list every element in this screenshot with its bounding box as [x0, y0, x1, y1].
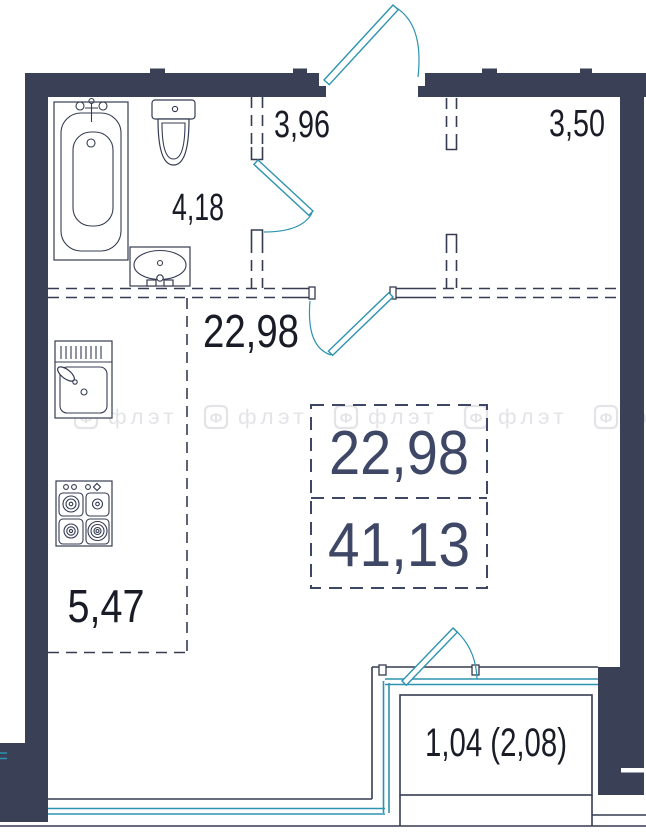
left-wall [25, 73, 48, 822]
entrance-door [324, 5, 419, 85]
right-bottom-pier [598, 667, 644, 795]
room-area-label-hallway: 3,96 [274, 104, 330, 146]
living-room-door [309, 293, 393, 356]
balcony-door [402, 628, 477, 685]
sink-faucet [157, 275, 163, 281]
summary-living-area: 22,98 [329, 419, 469, 488]
living-door-jamb-left [309, 287, 315, 299]
top-wall-right [425, 73, 646, 97]
wall-bump [150, 69, 165, 74]
watermark-text: флэт [108, 406, 178, 429]
stove-icon [56, 481, 112, 546]
kitchen-sink-unit [55, 341, 112, 418]
door-leaf [328, 293, 393, 356]
watermark-text: флэт [498, 406, 568, 429]
living-door-wall-left [290, 289, 309, 298]
bathroom-door-bracket-top [252, 147, 263, 160]
left-bottom-pier [0, 743, 48, 822]
wall-bump [580, 69, 592, 74]
door-leaf [254, 160, 313, 215]
toilet-icon [152, 100, 195, 165]
door-leaf [324, 5, 398, 85]
room-area-label-living: 22,98 [203, 305, 299, 357]
entrance-jamb-left [319, 86, 326, 97]
watermark-logo-glyph: Ф [470, 410, 483, 427]
sink-tap-right [164, 280, 173, 286]
floor-plan-page: Ф флэт Ф флэт Ф флэт Ф флэт Ф флэт [0, 0, 646, 833]
living-door-wall-right [396, 289, 425, 298]
room-area-label-balcony: 1,04 (2,08) [425, 721, 567, 765]
closet-opening-bracket-bottom [447, 235, 457, 243]
door-leaf [402, 628, 457, 685]
sink-tap-left [147, 280, 156, 286]
area-summary-box: 22,98 41,13 [311, 405, 487, 588]
room-area-label-closet: 3,50 [549, 103, 605, 145]
door-swing-arc [395, 7, 419, 77]
watermark-text: флэт [238, 406, 308, 429]
floor-plan-canvas: Ф флэт Ф флэт Ф флэт Ф флэт Ф флэт [0, 0, 646, 833]
room-area-label-bathroom: 4,18 [172, 187, 224, 229]
wall-bump [293, 69, 307, 74]
entrance-jamb-right [418, 86, 425, 97]
right-wall [620, 97, 644, 667]
stove-outline [56, 481, 112, 546]
room-area-label-kitchen: 5,47 [68, 580, 145, 632]
bathroom-door [254, 160, 313, 232]
right-wall-notch [621, 768, 644, 773]
balcony-door-jamb-left [379, 665, 386, 675]
door-swing-arc [264, 213, 312, 232]
sink-icon [130, 247, 190, 286]
watermark-logo-glyph: Ф [600, 410, 613, 427]
bathroom-door-bracket-bottom [252, 230, 263, 242]
kitchen-sink-icon [55, 341, 112, 418]
summary-total-area: 41,13 [328, 511, 470, 580]
watermark-unit: Ф флэт [205, 406, 308, 429]
watermark-logo-glyph: Ф [210, 410, 223, 427]
wall-bump [482, 69, 497, 74]
top-wall-left [25, 73, 319, 97]
bathtub-outline [54, 102, 128, 260]
toilet-tank [152, 100, 195, 119]
door-swing-arc [309, 301, 331, 355]
bathtub-icon [54, 99, 128, 261]
closet-opening-bracket-top [447, 142, 457, 150]
watermark-unit: Ф флэт [465, 406, 568, 429]
